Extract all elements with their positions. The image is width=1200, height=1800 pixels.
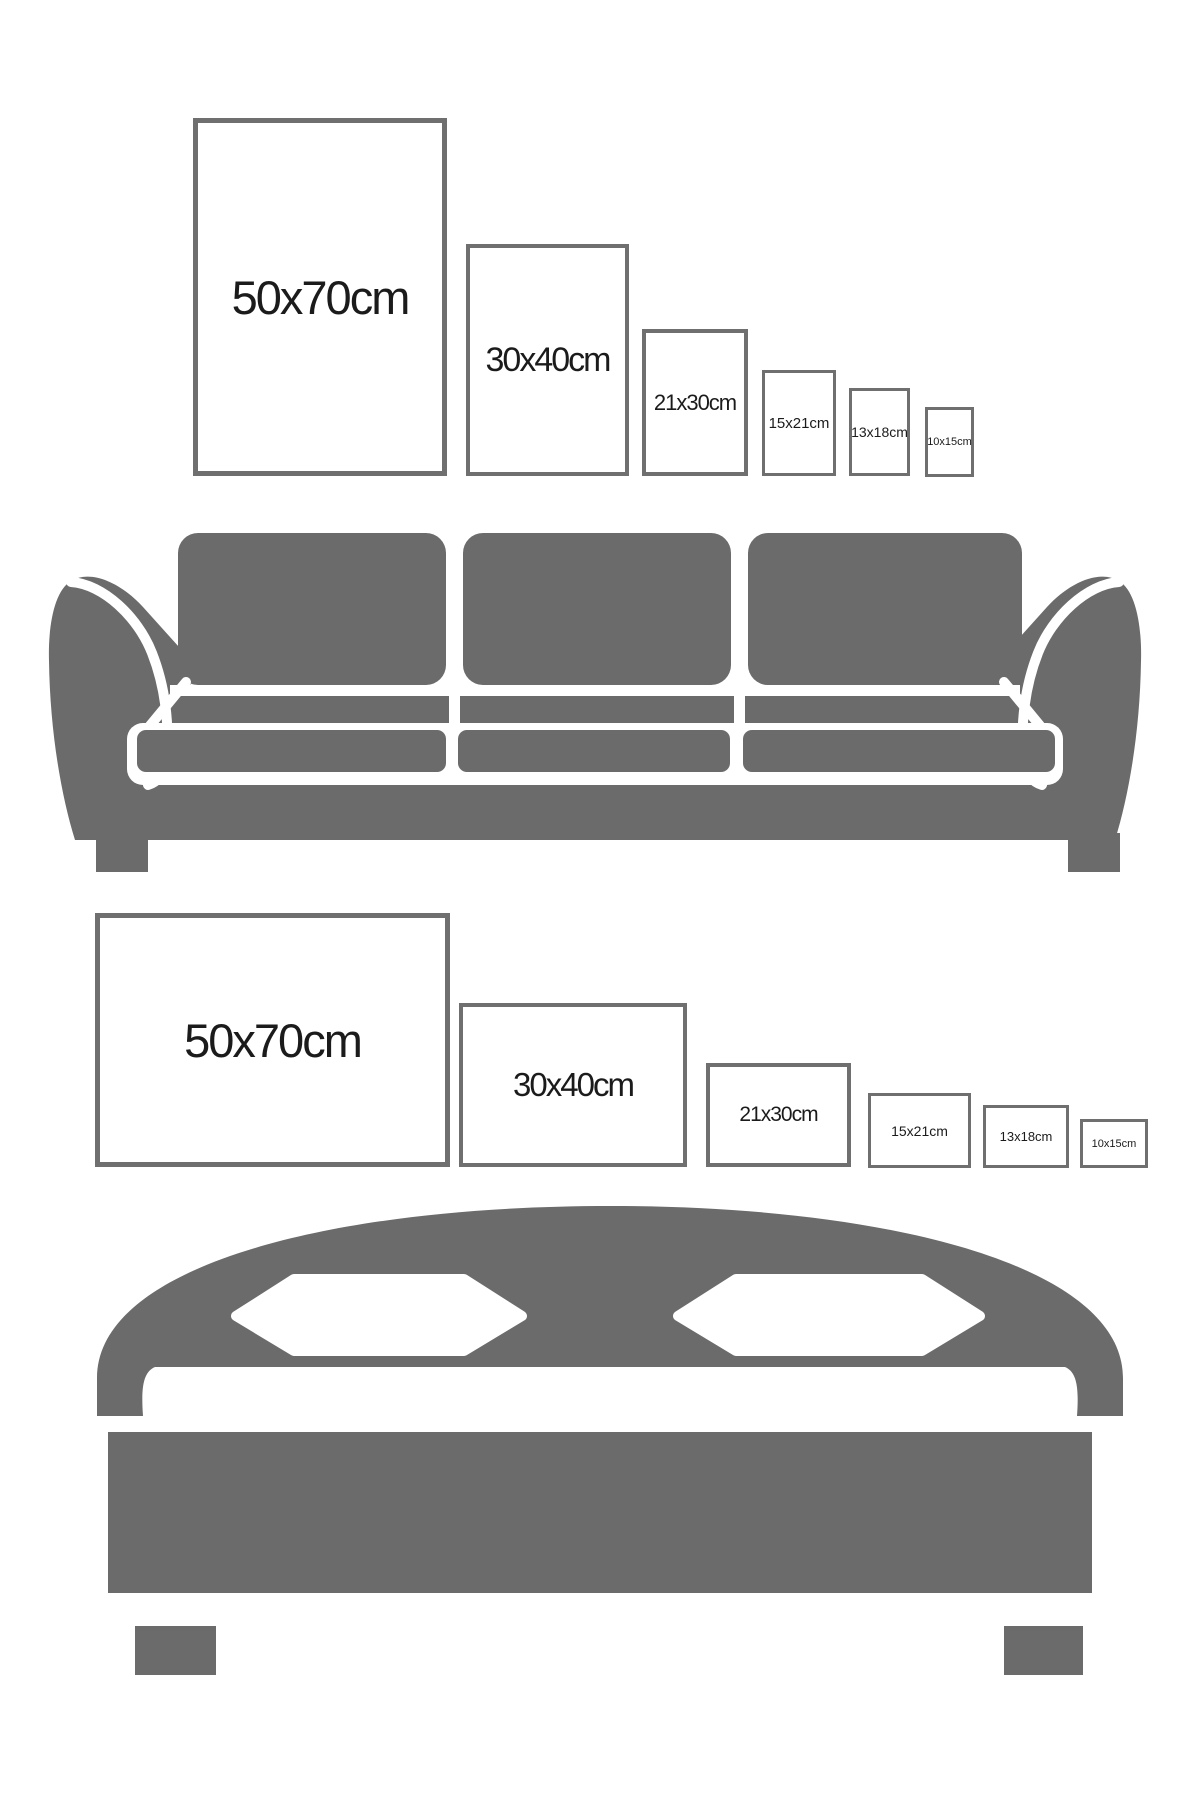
frame-portrait-10x15: 10x15cm	[925, 407, 974, 477]
frame-label: 21x30cm	[654, 390, 736, 416]
frame-portrait-30x40: 30x40cm	[466, 244, 629, 476]
size-comparison-infographic: 50x70cm 30x40cm 21x30cm 15x21cm 13x18cm …	[0, 0, 1200, 1800]
frame-portrait-15x21: 15x21cm	[762, 370, 836, 476]
sofa-icon	[45, 533, 1145, 873]
frame-label: 30x40cm	[486, 341, 610, 380]
frame-label: 21x30cm	[739, 1103, 817, 1127]
frame-label: 15x21cm	[769, 415, 830, 432]
frame-landscape-13x18: 13x18cm	[983, 1105, 1069, 1168]
frame-landscape-21x30: 21x30cm	[706, 1063, 851, 1167]
frame-landscape-10x15: 10x15cm	[1080, 1119, 1148, 1168]
frame-label: 10x15cm	[1092, 1138, 1137, 1150]
frame-label: 13x18cm	[851, 424, 908, 440]
frame-label: 50x70cm	[232, 270, 409, 325]
frame-landscape-15x21: 15x21cm	[868, 1093, 971, 1168]
frame-portrait-50x70: 50x70cm	[193, 118, 447, 476]
frame-portrait-13x18: 13x18cm	[849, 388, 910, 476]
bed-icon	[95, 1200, 1125, 1680]
frame-label: 13x18cm	[1000, 1129, 1053, 1144]
frame-label: 30x40cm	[513, 1066, 633, 1104]
frame-portrait-21x30: 21x30cm	[642, 329, 748, 476]
frame-landscape-30x40: 30x40cm	[459, 1003, 687, 1167]
frame-label: 50x70cm	[184, 1013, 361, 1068]
frame-landscape-50x70: 50x70cm	[95, 913, 450, 1167]
frame-label: 10x15cm	[927, 436, 972, 448]
frame-label: 15x21cm	[891, 1123, 948, 1139]
